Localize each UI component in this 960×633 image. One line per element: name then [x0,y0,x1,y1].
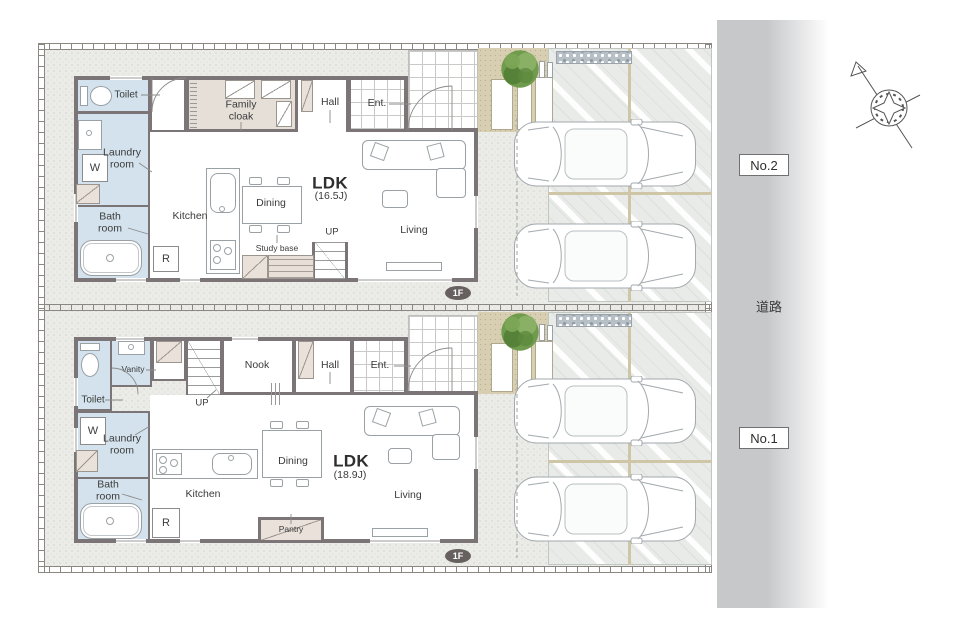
closet-hatch [76,184,100,204]
unit-no2-badge: No.2 [739,154,789,176]
burner-icon [213,244,221,252]
cloak-shelf [261,80,291,99]
room-label-living-no1: Living [394,490,421,502]
room-label-vanity-no1: Vanity [122,365,145,375]
car-no1-2 [513,474,697,544]
slab-joint [548,192,712,195]
coffee-table-no1 [388,448,412,464]
tv-board-no2 [386,262,442,271]
pebble-strip-no2 [556,51,632,64]
gate-post [547,325,553,341]
slab-joint [548,460,712,463]
chair [277,177,290,185]
window [232,337,258,341]
corridor-no2 [150,76,186,132]
floor-badge-no2: 1F [445,286,471,300]
burner-icon [224,247,232,255]
cloak-shelf [225,80,255,99]
lot-boundary-bottom [38,566,712,573]
floor-badge-no1: 1F [445,549,471,563]
room-label-bath-no1: Bath room [89,479,127,503]
sofa-chaise-no2 [436,168,466,198]
hall-closet-no1 [298,341,314,379]
burner-icon [159,466,167,474]
window [74,378,78,406]
room-label-living-no2: Living [400,225,427,237]
ldk-label-no1: LDK [333,451,369,470]
burner-icon [170,459,178,467]
basin-icon [86,130,92,136]
room-label-bath-no2: Bath room [91,211,129,235]
entrance-porch-no1 [408,315,478,392]
stairs-no1 [186,337,222,395]
window [358,278,452,282]
basin-icon [128,344,134,350]
window [116,278,146,282]
toilet-fixture-no2 [80,86,88,106]
dining-table-no1 [262,430,322,478]
chair [270,479,283,487]
faucet-icon [228,455,234,461]
room-label-dining-no2: Dining [256,198,286,210]
burner-icon [213,256,221,264]
stairs-label-no2: UP [325,228,338,239]
cloak-rail-hatch [190,81,197,128]
closet-hatch [156,341,182,363]
chair [249,225,262,233]
room-label-laundry-no1: Laundry room [95,433,149,457]
room-label-nook-no1: Nook [245,360,270,372]
hall-closet-no2 [301,80,313,112]
study-bench-left [242,255,268,279]
window [180,539,200,543]
wall-segment [408,128,478,132]
window [370,539,440,543]
room-label-dining-no1: Dining [278,456,308,468]
window [180,278,200,282]
room-label-study-no2: Study base [256,244,299,254]
cloak-shelf [276,101,292,127]
fridge-box-no2: R [153,246,179,272]
chair [296,421,309,429]
room-label-kitchen-no2: Kitchen [172,211,207,223]
fridge-box-no1: R [152,508,180,538]
nook-shelf-hatch [271,383,283,405]
coffee-table-no2 [382,190,408,208]
tub-drain-icon [106,254,114,262]
faucet-icon [219,206,225,212]
toilet-bowl-no2 [90,86,112,106]
car-no2-1 [513,119,697,189]
toilet-bowl-no1 [81,353,99,377]
room-label-family-cloak-no2: Family cloak [217,99,265,123]
chair [270,421,283,429]
room-label-toilet-no2: Toilet [114,89,137,100]
lot-divider [38,304,712,311]
sofa-chaise-no1 [432,434,460,460]
unit-no1-badge: No.1 [739,427,789,449]
chair [296,479,309,487]
room-label-toilet-no1: Toilet [81,394,104,405]
tree-icon [498,310,542,354]
room-label-entrance-no1: Ent. [371,360,390,372]
study-bench-slats [268,255,314,279]
room-label-hall-no1: Hall [321,360,339,372]
site-plan-canvas: 道路 No.2 No.1 [0,0,960,633]
toilet-tank-no1 [80,343,100,351]
pebble-strip-no1 [556,314,632,327]
room-label-kitchen-no1: Kitchen [185,489,220,501]
gate-post [547,62,553,78]
road-label: 道路 [756,301,782,316]
car-no1-1 [513,376,697,446]
compass-icon [843,52,943,162]
window [474,437,478,469]
stairs-label-no1: UP [195,399,208,410]
room-label-pantry-no1: Pantry [279,525,304,535]
tree-icon [498,47,542,91]
window [74,428,78,452]
wall-segment [408,391,478,395]
chair [277,225,290,233]
room-label-laundry-no2: Laundry room [95,147,149,171]
room-label-entrance-no2: Ent. [368,98,387,110]
tv-board-no1 [372,528,428,537]
burner-icon [159,456,167,464]
ldk-size-no2: (16.5J) [315,191,348,203]
chair [249,177,262,185]
stairs-no2 [312,242,348,282]
room-label-hall-no2: Hall [321,97,339,109]
window [110,76,142,80]
entrance-porch-no2 [408,50,478,132]
tub-drain-icon [106,517,114,525]
ldk-size-no1: (18.9J) [334,470,367,482]
window [116,539,146,543]
car-no2-2 [513,221,697,291]
window [474,196,478,228]
